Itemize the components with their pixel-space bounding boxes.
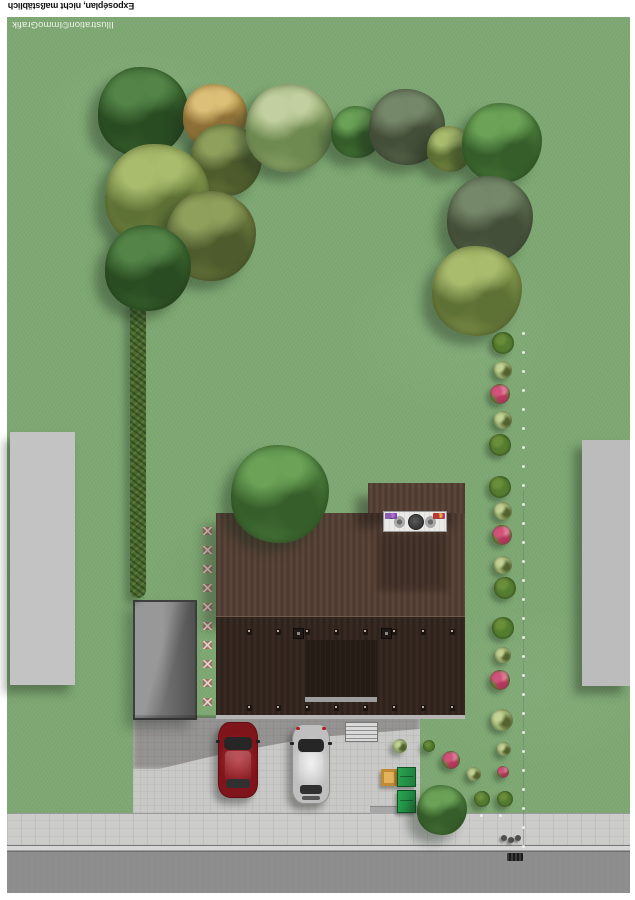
illustrator-credit-text: Illustration©ImmoGrafik [12,19,114,30]
roof-tick [450,629,455,635]
flower-box [433,513,445,519]
garage-shadow-overlay [162,602,195,718]
waste-bin [397,767,416,787]
house [216,483,465,719]
car-mirror [216,740,220,743]
car-taillight [296,727,300,730]
neighbor-building-left [10,432,75,685]
roof-tick [334,629,339,635]
car-windshield [298,739,324,752]
property-boundary-line [523,490,524,845]
roof-tick [305,629,310,635]
car-grill [302,796,320,800]
hedge-row [130,298,146,598]
roof-tick [334,705,339,711]
entrance-steps [345,722,378,742]
roof-tick [247,705,252,711]
car-roof [299,753,323,785]
roof-tick [247,629,252,635]
roof-tick [392,705,397,711]
roof-tick [305,705,310,711]
car-rear-window [226,779,250,788]
garage [133,600,197,720]
waste-bin [397,790,416,813]
roof-tick [421,705,426,711]
roof-tick [450,705,455,711]
silver-car [292,724,330,804]
car-taillight [322,727,326,730]
car-mirror [256,740,260,743]
roof-terrace [383,511,447,532]
plan-disclaimer-text: Exposéplan, nicht maßstäblich [8,1,134,11]
flower-box [385,513,397,519]
sidewalk [7,813,630,845]
neighbor-building-right [582,440,630,686]
terrace-table [408,514,424,530]
roof-tick [421,629,426,635]
roof-tick [392,629,397,635]
red-car [218,722,258,798]
roof-tick [363,629,368,635]
curb [7,845,630,852]
storm-drain [507,853,523,861]
car-mirror [290,742,294,745]
car-rear-window [300,785,322,794]
car-mirror [328,742,332,745]
road [7,852,630,893]
roof-tick [363,705,368,711]
roof-tick [276,705,281,711]
roof-tick [276,629,281,635]
site-plan-canvas: Exposéplan, nicht maßstäblich Illustrati… [0,0,635,900]
car-windshield [224,737,252,750]
sandbox [381,769,397,786]
